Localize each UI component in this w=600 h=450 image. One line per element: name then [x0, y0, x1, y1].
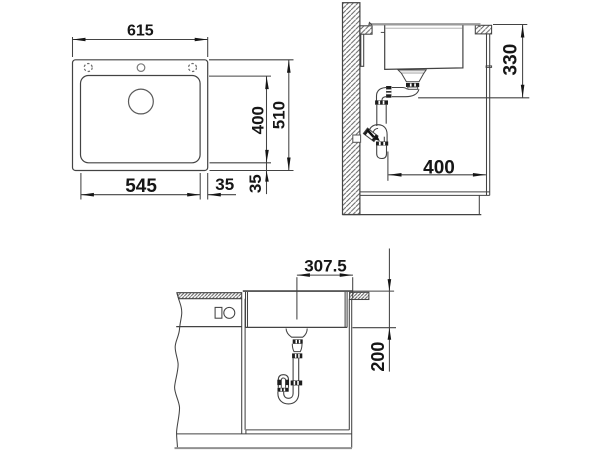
svg-text:35: 35 — [246, 174, 265, 193]
svg-text:400: 400 — [423, 157, 455, 178]
svg-text:400: 400 — [249, 106, 268, 134]
svg-text:330: 330 — [501, 44, 522, 76]
svg-text:615: 615 — [127, 23, 154, 40]
svg-text:200: 200 — [368, 342, 388, 372]
svg-text:510: 510 — [270, 101, 289, 129]
svg-text:35: 35 — [215, 175, 234, 194]
svg-text:545: 545 — [125, 176, 157, 197]
svg-text:307.5: 307.5 — [304, 257, 347, 276]
